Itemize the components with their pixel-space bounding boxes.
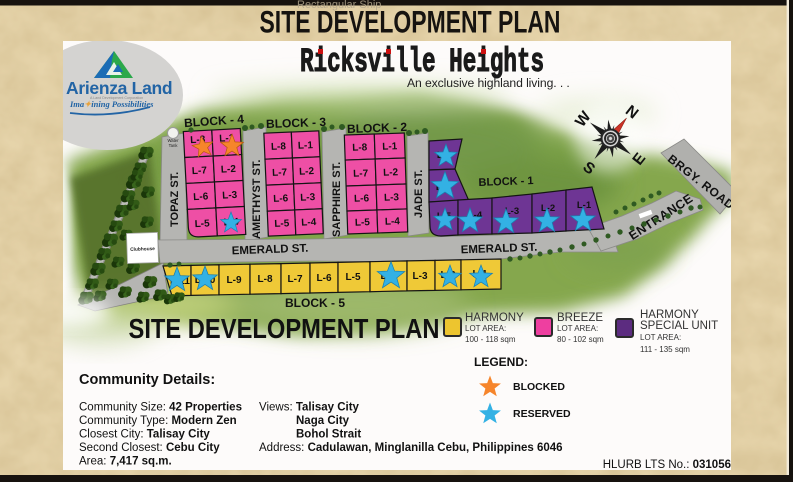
svg-text:Community Details:: Community Details: bbox=[79, 372, 215, 388]
svg-text:Community Type: Modern Zen: Community Type: Modern Zen bbox=[79, 415, 237, 427]
svg-text:L-4: L-4 bbox=[301, 217, 317, 229]
svg-text:HLURB LTS No.: 031056: HLURB LTS No.: 031056 bbox=[603, 459, 731, 471]
svg-text:L-1: L-1 bbox=[577, 200, 592, 211]
svg-text:LOT AREA:: LOT AREA: bbox=[640, 333, 681, 342]
svg-text:L-7: L-7 bbox=[192, 165, 208, 177]
svg-text:L-3: L-3 bbox=[300, 192, 316, 204]
svg-text:Closest City: Talisay City: Closest City: Talisay City bbox=[79, 429, 210, 441]
svg-text:L-1: L-1 bbox=[298, 140, 314, 152]
svg-text:HARMONY: HARMONY bbox=[465, 312, 524, 324]
svg-text:L-2: L-2 bbox=[299, 166, 315, 178]
svg-text:BREEZE: BREEZE bbox=[557, 312, 603, 324]
svg-text:Tank: Tank bbox=[169, 143, 179, 148]
svg-text:BLOCKED: BLOCKED bbox=[513, 381, 565, 393]
svg-text:L-6: L-6 bbox=[317, 273, 332, 284]
svg-text:Address: Cadulawan, Minglanill: Address: Cadulawan, Minglanilla Cebu, Ph… bbox=[259, 442, 563, 454]
svg-text:SPECIAL UNIT: SPECIAL UNIT bbox=[640, 320, 718, 332]
svg-text:LOT AREA:: LOT AREA: bbox=[557, 324, 598, 333]
svg-text:L-8: L-8 bbox=[258, 274, 273, 285]
svg-text:Views: Talisay City: Views: Talisay City bbox=[259, 402, 360, 414]
svg-text:BLOCK - 1: BLOCK - 1 bbox=[478, 175, 533, 189]
svg-text:JADE ST.: JADE ST. bbox=[413, 170, 425, 218]
svg-text:L-2: L-2 bbox=[383, 167, 399, 179]
svg-text:L-6: L-6 bbox=[193, 191, 209, 203]
svg-text:BLOCK - 2: BLOCK - 2 bbox=[347, 120, 408, 136]
svg-text:Ima✦ining Possibilities: Ima✦ining Possibilities bbox=[69, 99, 154, 109]
svg-text:Arienza Land: Arienza Land bbox=[66, 78, 172, 98]
svg-text:AMETHYST ST.: AMETHYST ST. bbox=[251, 160, 263, 239]
svg-text:SITE DEVELOPMENT PLAN: SITE DEVELOPMENT PLAN bbox=[260, 4, 561, 40]
svg-text:TOPAZ ST.: TOPAZ ST. bbox=[169, 172, 181, 227]
svg-text:L-5: L-5 bbox=[194, 218, 210, 230]
svg-text:Area: 7,417 sq.m.: Area: 7,417 sq.m. bbox=[79, 456, 172, 468]
svg-text:L-8: L-8 bbox=[352, 142, 368, 154]
svg-text:L-3: L-3 bbox=[384, 192, 400, 204]
svg-text:Bohol Strait: Bohol Strait bbox=[296, 429, 361, 441]
svg-text:LEGEND:: LEGEND: bbox=[474, 355, 528, 369]
svg-text:L-2: L-2 bbox=[221, 164, 237, 176]
svg-text:LOT AREA:: LOT AREA: bbox=[465, 324, 506, 333]
svg-text:L-5: L-5 bbox=[355, 217, 371, 229]
svg-text:L-6: L-6 bbox=[354, 193, 370, 205]
svg-text:L-6: L-6 bbox=[273, 193, 289, 205]
svg-text:L-4: L-4 bbox=[385, 216, 401, 228]
svg-text:100 - 118 sqm: 100 - 118 sqm bbox=[465, 335, 516, 344]
svg-text:BLOCK - 3: BLOCK - 3 bbox=[266, 115, 327, 131]
svg-text:BLOCK - 5: BLOCK - 5 bbox=[285, 296, 345, 310]
svg-text:80 - 102 sqm: 80 - 102 sqm bbox=[557, 335, 604, 344]
svg-text:L-5: L-5 bbox=[274, 218, 290, 230]
svg-text:L-8: L-8 bbox=[271, 141, 287, 153]
svg-text:111 - 135 sqm: 111 - 135 sqm bbox=[640, 345, 690, 354]
svg-text:L-7: L-7 bbox=[353, 168, 369, 180]
svg-text:Clubhouse: Clubhouse bbox=[130, 246, 155, 253]
svg-text:L-5: L-5 bbox=[346, 272, 361, 283]
svg-text:L-3: L-3 bbox=[413, 271, 428, 282]
svg-text:An exclusive highland living.: An exclusive highland living. . . bbox=[407, 76, 570, 90]
svg-text:L-1: L-1 bbox=[382, 141, 398, 153]
svg-text:Community Size: 42 Properties: Community Size: 42 Properties bbox=[79, 402, 242, 414]
svg-text:SAPPHIRE ST.: SAPPHIRE ST. bbox=[331, 162, 343, 237]
svg-text:L-9: L-9 bbox=[227, 275, 242, 286]
svg-text:SITE DEVELOPMENT PLAN: SITE DEVELOPMENT PLAN bbox=[129, 313, 440, 344]
svg-text:Second Closest: Cebu City: Second Closest: Cebu City bbox=[79, 442, 220, 454]
svg-text:L-3: L-3 bbox=[222, 190, 238, 202]
svg-text:RESERVED: RESERVED bbox=[513, 408, 571, 420]
svg-text:L-7: L-7 bbox=[272, 167, 288, 179]
svg-text:L-7: L-7 bbox=[288, 274, 303, 285]
svg-text:Naga City: Naga City bbox=[296, 415, 350, 427]
